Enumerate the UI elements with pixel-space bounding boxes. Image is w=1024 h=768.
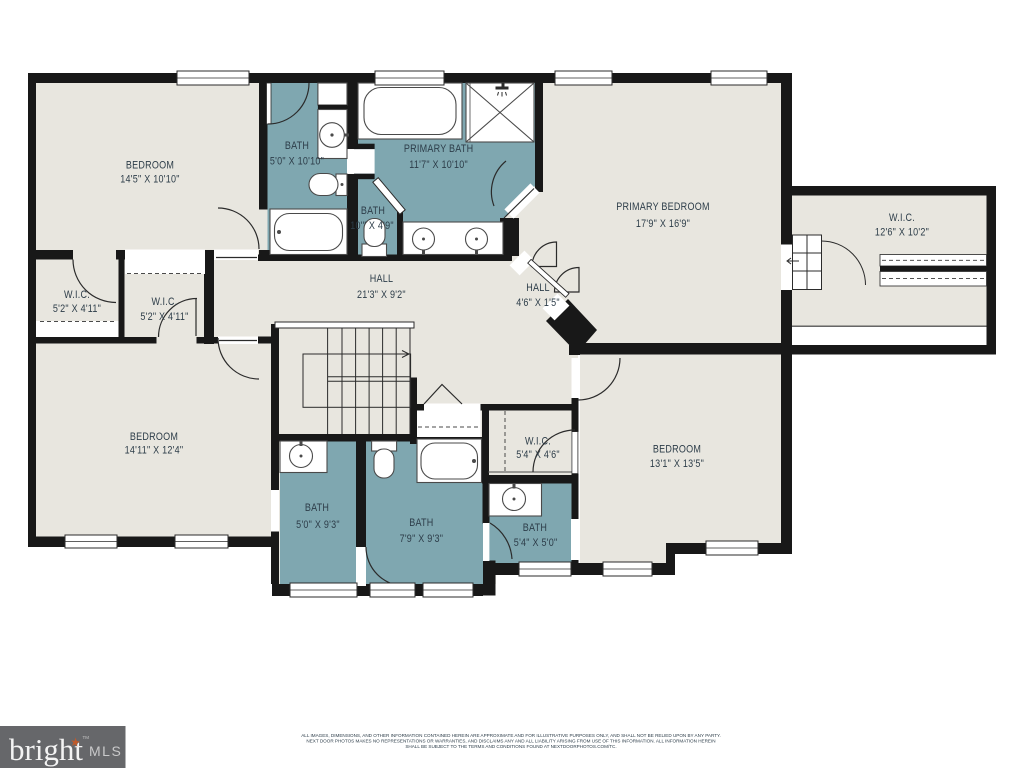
svg-text:ALL IMAGES, DIMENSIONS, AND OT: ALL IMAGES, DIMENSIONS, AND OTHER INFORM… (301, 733, 721, 738)
svg-text:PRIMARY BATH: PRIMARY BATH (404, 143, 474, 155)
svg-text:W.I.C.: W.I.C. (889, 212, 915, 224)
svg-text:BATH: BATH (361, 205, 385, 217)
svg-text:14'5" X 10'10": 14'5" X 10'10" (120, 174, 180, 186)
svg-text:MLS: MLS (89, 743, 122, 759)
svg-text:BATH: BATH (305, 502, 329, 514)
svg-text:5'0" X 9'3": 5'0" X 9'3" (296, 519, 340, 531)
svg-text:7'9" X 9'3": 7'9" X 9'3" (400, 533, 444, 545)
svg-text:12'6" X 10'2": 12'6" X 10'2" (875, 227, 929, 239)
svg-text:5'2" X 4'11": 5'2" X 4'11" (53, 303, 101, 315)
svg-text:W.I.C.: W.I.C. (525, 436, 551, 448)
svg-text:5'2" X 4'11": 5'2" X 4'11" (140, 311, 188, 323)
svg-text:BATH: BATH (409, 517, 433, 529)
svg-text:HALL: HALL (526, 282, 550, 294)
svg-text:TM: TM (83, 735, 90, 740)
svg-text:W.I.C.: W.I.C. (151, 296, 177, 308)
svg-text:BATH: BATH (285, 140, 309, 152)
svg-text:bright: bright (9, 732, 83, 767)
svg-text:NEXT DOOR PHOTOS MAKES NO REPR: NEXT DOOR PHOTOS MAKES NO REPRESENTATION… (306, 739, 715, 744)
svg-text:5'4" X 4'6": 5'4" X 4'6" (516, 449, 560, 461)
svg-text:BEDROOM: BEDROOM (653, 444, 701, 456)
svg-text:10'" X 4'9": 10'" X 4'9" (350, 220, 394, 232)
svg-text:5'0" X 10'10": 5'0" X 10'10" (270, 156, 324, 168)
svg-text:17'9" X 16'9": 17'9" X 16'9" (636, 218, 690, 230)
svg-text:BEDROOM: BEDROOM (130, 431, 178, 443)
svg-text:11'7" X 10'10": 11'7" X 10'10" (409, 159, 468, 171)
svg-text:5'4" X 5'0": 5'4" X 5'0" (514, 537, 558, 549)
svg-text:14'11" X 12'4": 14'11" X 12'4" (125, 445, 184, 457)
svg-text:BATH: BATH (523, 522, 547, 534)
svg-text:4'6" X 1'5": 4'6" X 1'5" (516, 297, 560, 309)
svg-text:BEDROOM: BEDROOM (126, 160, 174, 172)
svg-text:SHALL BE SUBJECT TO THE TERMS: SHALL BE SUBJECT TO THE TERMS AND CONDIT… (405, 744, 616, 749)
svg-text:HALL: HALL (370, 273, 394, 285)
svg-text:21'3" X 9'2": 21'3" X 9'2" (357, 289, 406, 301)
svg-text:W.I.C.: W.I.C. (64, 289, 90, 301)
svg-text:PRIMARY BEDROOM: PRIMARY BEDROOM (616, 201, 709, 213)
svg-text:13'1" X 13'5": 13'1" X 13'5" (650, 458, 704, 470)
